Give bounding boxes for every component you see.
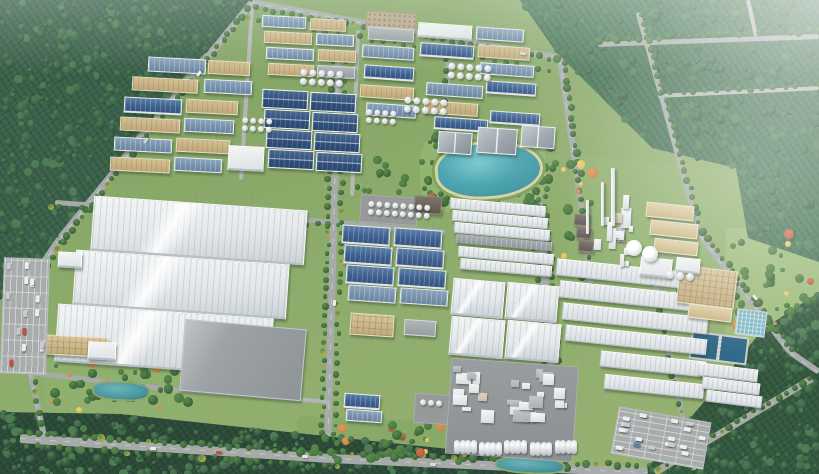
roadside-tree <box>652 63 659 70</box>
roadside-tree <box>270 9 276 15</box>
forest-tree <box>741 2 745 6</box>
roadside-tree <box>787 31 792 36</box>
roadside-tree <box>340 448 346 454</box>
storage-silo <box>266 126 272 132</box>
park-tree <box>397 448 403 454</box>
park-tree <box>785 241 791 247</box>
park-tree <box>767 324 775 332</box>
roadside-tree <box>720 430 725 435</box>
forest-tree <box>772 180 776 184</box>
forest-tree <box>13 179 20 186</box>
roadside-tree <box>582 460 590 468</box>
parked-car <box>684 427 692 432</box>
forest-tree <box>159 46 163 50</box>
park-tree <box>366 188 372 194</box>
forest-tree <box>63 66 70 73</box>
plant-structure <box>619 254 624 267</box>
plant-structure <box>469 384 480 394</box>
storage-silo <box>483 74 490 81</box>
roadside-tree <box>707 32 712 37</box>
park-tree <box>183 397 193 407</box>
storage-silo <box>309 69 316 76</box>
roadside-tree <box>648 46 655 53</box>
plant-chimney <box>601 182 604 226</box>
forest-tree <box>300 437 304 441</box>
park-tree <box>576 189 581 194</box>
storage-silo <box>390 111 396 117</box>
plant-structure <box>510 380 519 387</box>
storage-silo <box>382 118 388 124</box>
park-tree <box>164 375 173 384</box>
forest-tree <box>106 84 113 91</box>
building-bigwhite <box>504 282 559 323</box>
building-tan <box>186 99 239 116</box>
forest-tree <box>186 0 189 2</box>
forest-tree <box>18 34 25 41</box>
roadside-tree <box>605 460 612 467</box>
roadside-tree <box>677 34 681 38</box>
forest-tree <box>0 224 9 233</box>
building-pavilion <box>437 131 472 155</box>
park-tree <box>566 160 575 169</box>
forest-tree <box>776 453 779 456</box>
forest-tree <box>714 458 719 463</box>
roadside-tree <box>681 167 687 173</box>
storage-silo <box>431 98 438 105</box>
storage-silo <box>457 72 464 79</box>
roadside-tree <box>563 67 568 72</box>
storage-silo <box>382 110 388 116</box>
roadside-tree <box>671 123 678 130</box>
park-tree <box>133 370 137 374</box>
building-bluelight <box>426 82 484 99</box>
vehicle <box>430 463 436 466</box>
roadside-tree <box>626 36 632 42</box>
building-navy <box>262 89 309 110</box>
forest-tree <box>740 145 747 152</box>
forest-tree <box>126 43 134 51</box>
roadside-tree <box>547 57 552 62</box>
building-graydark <box>575 226 592 240</box>
forest-tree <box>572 20 579 27</box>
forest-tree <box>231 1 239 9</box>
forest-tree <box>798 423 801 426</box>
forest-tree <box>406 444 414 452</box>
park-tree <box>544 186 550 192</box>
roadside-tree <box>99 190 105 196</box>
building-bluelight <box>400 287 449 306</box>
building-blue <box>397 267 446 289</box>
forest-tree <box>695 141 703 149</box>
storage-silo <box>390 119 396 125</box>
park-tree <box>348 436 355 443</box>
storage-silo <box>404 96 411 103</box>
forest-tree <box>141 427 146 432</box>
forest-tree <box>768 107 775 114</box>
storage-silo <box>475 64 482 71</box>
roadside-tree <box>641 21 647 27</box>
storage-silo <box>408 212 414 218</box>
forest-tree <box>786 371 792 377</box>
forest-tree <box>137 16 144 23</box>
forest-tree <box>745 456 749 460</box>
roadside-tree <box>575 462 580 467</box>
forest-tree <box>726 14 731 19</box>
forest-tree <box>462 470 469 474</box>
forest-tree <box>782 112 785 115</box>
forest-tree <box>627 118 633 124</box>
plant-structure <box>619 234 624 241</box>
forest-tree <box>192 47 195 50</box>
building-navy <box>316 152 363 173</box>
storage-silo <box>424 213 430 219</box>
forest-tree <box>108 3 114 9</box>
plant-structure <box>478 392 487 401</box>
storage-silo <box>300 69 307 76</box>
park-tree <box>327 448 335 456</box>
roadside-tree <box>333 412 339 418</box>
forest-tree <box>111 422 115 426</box>
building-graydark <box>577 239 594 253</box>
park-tree <box>122 374 129 381</box>
forest-tree <box>802 200 811 209</box>
forest-tree <box>745 423 754 432</box>
forest-tree <box>25 155 28 158</box>
storage-silo <box>400 211 406 217</box>
park-tree <box>541 163 549 171</box>
building-gray <box>368 26 415 42</box>
forest-tree <box>28 192 33 197</box>
forest-tree <box>693 111 702 120</box>
forest-tree <box>12 452 16 456</box>
forest-tree <box>7 242 14 249</box>
forest-tree <box>771 133 779 141</box>
forest-tree <box>182 35 189 42</box>
vehicle <box>216 451 222 454</box>
roadside-tree <box>280 10 284 14</box>
building-bluelight <box>346 409 383 423</box>
forest-tree <box>522 2 531 11</box>
roadside-tree <box>97 434 105 442</box>
forest-tree <box>813 464 817 468</box>
parked-car <box>9 360 13 367</box>
building-blue <box>393 227 442 249</box>
roadside-tree <box>111 447 118 454</box>
forest-tree <box>0 20 6 26</box>
forest-tree <box>785 453 788 456</box>
forest-tree <box>786 6 790 10</box>
forest-tree <box>162 471 166 474</box>
building-bluelight <box>348 284 397 303</box>
forest-tree <box>114 457 121 464</box>
park-tree <box>577 160 585 168</box>
roadside-tree <box>109 176 114 181</box>
forest-tree <box>619 91 628 100</box>
forest-tree <box>165 18 173 26</box>
forest-tree <box>739 98 745 104</box>
storage-silo <box>424 205 430 211</box>
roadside-tree <box>135 450 140 455</box>
building-blue <box>344 393 381 410</box>
forest-tree <box>58 4 64 10</box>
roadside-tree <box>325 251 330 256</box>
roadside-tree <box>676 401 682 407</box>
plant-chimney <box>611 168 615 226</box>
roadside-tree <box>736 85 742 91</box>
roadside-tree <box>33 379 38 384</box>
roadside-tree <box>680 160 685 165</box>
forest-tree <box>785 170 789 174</box>
park-tree <box>563 204 573 214</box>
storage-silo <box>366 109 372 115</box>
forest-tree <box>45 163 48 166</box>
park-tree <box>795 242 800 247</box>
roadside-tree <box>48 204 54 210</box>
forest-tree <box>239 435 245 441</box>
forest-tree <box>78 70 83 75</box>
forest-tree <box>5 59 14 68</box>
forest-tree <box>536 10 545 19</box>
forest-tree <box>608 86 613 91</box>
roadside-tree <box>695 33 700 38</box>
roadside-tree <box>594 462 598 466</box>
roadside-tree <box>340 180 346 186</box>
roadside-tree <box>156 452 162 458</box>
roadside-tree <box>751 409 756 414</box>
parked-car <box>30 279 34 286</box>
forest-tree <box>214 0 222 5</box>
parked-car <box>648 445 656 450</box>
forest-tree <box>328 466 333 471</box>
park-tree <box>88 369 96 377</box>
roadside-tree <box>268 460 273 465</box>
roadside-tree <box>530 52 535 57</box>
roadside-tree <box>333 371 339 377</box>
parked-car <box>23 310 27 317</box>
forest-tree <box>94 110 100 116</box>
roadside-tree <box>351 21 356 26</box>
parked-car <box>22 328 26 335</box>
parked-car <box>680 444 688 449</box>
parked-car <box>639 413 647 418</box>
storage-silo <box>413 106 420 113</box>
building-gray <box>403 319 436 337</box>
forest-tree <box>31 160 39 168</box>
forest-tree <box>118 39 121 42</box>
roadside-tree <box>230 27 236 33</box>
forest-tree <box>785 182 793 190</box>
storage-silo <box>384 202 390 208</box>
roadside-tree <box>543 194 549 200</box>
forest-tree <box>30 222 33 225</box>
forest-tree <box>769 126 774 131</box>
forest-tree <box>721 114 725 118</box>
forest-tree <box>109 96 117 104</box>
roadside-tree <box>323 294 327 298</box>
building-white <box>227 145 264 172</box>
forest-tree <box>61 418 65 422</box>
park-tree <box>430 160 435 165</box>
storage-silo <box>413 97 420 104</box>
park-tree <box>455 458 462 465</box>
roadside-tree <box>742 414 747 419</box>
storage-silo <box>457 63 464 70</box>
roadside-tree <box>337 279 343 285</box>
storage-silo <box>422 98 429 105</box>
roadside-tree <box>235 444 240 449</box>
forest-tree <box>412 467 420 474</box>
forest-tree <box>151 10 160 19</box>
forest-tree <box>748 434 751 437</box>
forest-tree <box>746 125 752 131</box>
forest-tree <box>695 156 700 161</box>
forest-tree <box>83 55 90 62</box>
forest-tree <box>211 465 220 474</box>
roadside-tree <box>162 440 168 446</box>
building-blue <box>395 247 444 269</box>
forest-tree <box>170 469 177 474</box>
forest-tree <box>801 444 810 453</box>
plant-structure <box>594 239 602 250</box>
roadside-tree <box>339 209 345 215</box>
building-tangrid <box>349 312 394 337</box>
forest-tree <box>295 442 299 446</box>
storage-silo <box>242 117 248 123</box>
plant-silo <box>496 442 502 456</box>
parked-car <box>35 309 39 316</box>
roadside-tree <box>335 381 340 386</box>
forest-tree <box>615 101 622 108</box>
plant-structure <box>513 410 529 422</box>
park-tree <box>535 192 539 196</box>
forest-tree <box>5 186 14 195</box>
park-tree <box>549 165 556 172</box>
forest-tree <box>192 34 200 42</box>
silo-cluster <box>403 96 449 117</box>
cooling-tower <box>642 246 658 262</box>
forest-tree <box>626 8 632 14</box>
forest-tree <box>767 21 771 25</box>
roadside-tree <box>614 462 622 470</box>
forest-tree <box>603 9 611 17</box>
roadside-tree <box>333 391 339 397</box>
forest-tree <box>98 117 103 122</box>
building-navy <box>310 92 357 113</box>
forest-tree <box>696 51 699 54</box>
roadside-tree <box>60 239 66 245</box>
roadside-tree <box>357 33 363 39</box>
building-blue <box>345 264 394 286</box>
forest-tree <box>16 250 21 255</box>
forest-tree <box>773 161 782 170</box>
roadside-tree <box>218 444 222 448</box>
forest-tree <box>764 357 767 360</box>
forest-tree <box>561 22 569 30</box>
park-tree <box>568 234 575 241</box>
park-tree <box>561 167 566 172</box>
plant-structure <box>453 395 467 405</box>
roadside-tree <box>563 84 571 92</box>
roadside-tree <box>710 433 716 439</box>
roadside-tree <box>73 219 80 226</box>
forest-tree <box>755 76 764 85</box>
roadside-tree <box>82 434 88 440</box>
aeration-basin <box>735 308 768 337</box>
roadside-tree <box>745 31 751 37</box>
forest-tree <box>45 43 50 48</box>
building-bluelight <box>362 44 415 61</box>
storage-silo <box>266 118 272 124</box>
forest-tree <box>721 140 727 146</box>
forest-tree <box>19 230 26 237</box>
roadside-tree <box>335 464 340 469</box>
park-tree <box>69 381 77 389</box>
storage-silo <box>448 71 455 78</box>
forest-tree <box>694 102 701 109</box>
forest-tree <box>11 412 14 415</box>
roadside-tree <box>636 36 642 42</box>
roadside-tree <box>320 395 325 400</box>
parked-car <box>22 344 26 351</box>
roadside-tree <box>535 277 541 283</box>
roadside-tree <box>336 302 341 307</box>
building-white <box>58 251 83 268</box>
building-bluelight <box>316 33 355 47</box>
forest-tree <box>93 454 102 463</box>
roadside-tree <box>65 446 72 453</box>
roadside-tree <box>246 445 252 451</box>
storage-silo <box>475 73 482 80</box>
plant-silo <box>471 440 477 454</box>
forest-tree <box>51 114 57 120</box>
forest-tree <box>752 171 756 175</box>
storage-silo <box>484 65 491 72</box>
storage-silo <box>384 210 390 216</box>
forest-tree <box>26 144 34 152</box>
parked-car <box>686 421 694 426</box>
park-tree <box>53 398 61 406</box>
forest-tree <box>784 127 787 130</box>
building-white <box>88 341 117 360</box>
forest-tree <box>5 414 14 423</box>
storage-silo <box>366 117 372 123</box>
roadside-tree <box>562 60 569 67</box>
forest-tree <box>555 1 562 8</box>
forest-tree <box>18 121 23 126</box>
forest-tree <box>675 465 683 473</box>
plant-structure <box>461 406 470 411</box>
parked-car <box>16 328 20 335</box>
roadside-tree <box>77 446 85 454</box>
forest-tree <box>743 184 746 187</box>
park-tree <box>515 191 521 197</box>
silo-cluster <box>420 399 444 409</box>
roadside-tree <box>799 380 807 388</box>
forest-tree <box>813 141 819 149</box>
roadside-tree <box>322 370 326 374</box>
forest-tree <box>45 97 50 102</box>
forest-tree <box>811 432 819 440</box>
storage-silo <box>336 71 343 78</box>
park-tree <box>766 272 775 281</box>
forest-tree <box>167 41 174 48</box>
building-blue <box>490 110 541 126</box>
forest-tree <box>720 2 726 8</box>
forest-tree <box>88 467 93 472</box>
building-navy <box>312 112 359 133</box>
forest-tree <box>692 65 701 74</box>
roadside-tree <box>245 459 250 464</box>
